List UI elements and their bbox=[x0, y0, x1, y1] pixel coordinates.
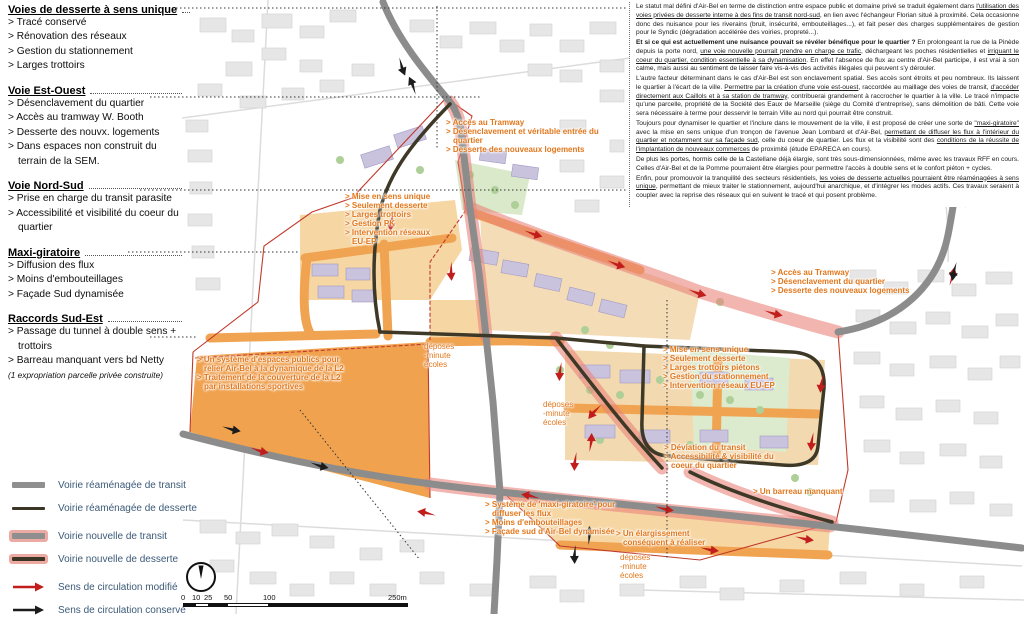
note-section-one-way: Voies de desserte à sens unique > Tracé … bbox=[8, 4, 182, 74]
paragraph: Toujours pour dynamiser le quartier et l… bbox=[636, 120, 1019, 155]
expropriation-note: (1 expropriation parcelle privée constru… bbox=[8, 370, 182, 380]
transit-reworked-swatch bbox=[12, 482, 45, 488]
note-item: > Passage du tunnel à double sens + trot… bbox=[8, 325, 182, 354]
dotted-leader bbox=[89, 188, 182, 189]
paragraph: Le statut mal défini d'Air-Bel en terme … bbox=[636, 3, 1019, 38]
scale-bar-segments bbox=[183, 603, 411, 607]
dotted-leader bbox=[90, 93, 182, 94]
map-callout-one-way-east: > Mise en sens unique> Seulement dessert… bbox=[663, 345, 805, 390]
paragraph: Enfin, pour promouvoir la tranquilité de… bbox=[636, 175, 1019, 201]
note-item: > Gestion du stationnement bbox=[8, 45, 182, 59]
note-section-roundabout: Maxi-giratoire > Diffusion des flux > Mo… bbox=[8, 247, 182, 302]
section-title: Maxi-giratoire bbox=[8, 247, 80, 259]
note-item: > Accessibilité et visibilité du coeur d… bbox=[8, 207, 182, 236]
analysis-text-block: Le statut mal défini d'Air-Bel en terme … bbox=[629, 2, 1020, 207]
legend-label: Voirie nouvelle de transit bbox=[58, 531, 167, 542]
legend-label: Voirie nouvelle de desserte bbox=[58, 554, 178, 565]
legend-label: Voirie réaménagée de transit bbox=[58, 480, 186, 491]
urban-plan-sheet: { "colors": { "transit_gray": "#8f8f8f",… bbox=[0, 0, 1024, 614]
legend-item: Sens de circulation conservé bbox=[12, 603, 202, 617]
legend-label: Voirie réaménagée de desserte bbox=[58, 503, 197, 514]
map-label-school-dropoff: déposes-minuteécoles bbox=[620, 553, 670, 580]
scale-end-label: 250m bbox=[388, 593, 407, 602]
scale-tick: 25 bbox=[204, 593, 212, 602]
scale-tick: 100 bbox=[263, 593, 276, 602]
note-item: > Barreau manquant vers bd Netty bbox=[8, 354, 182, 368]
north-compass-icon bbox=[186, 562, 216, 592]
legend-item: Voirie réaménagée de desserte bbox=[12, 501, 202, 515]
map-label-school-dropoff: déposes-minuteécoles bbox=[424, 342, 474, 369]
note-item: > Désenclavement du quartier bbox=[8, 97, 182, 111]
note-item: > Desserte des nouvx. logements bbox=[8, 126, 182, 140]
map-callout-one-way-west: > Mise en sens unique> Seulement dessert… bbox=[345, 192, 445, 246]
map-callout-public-spaces-l2: > Un système d'espaces publics pour reli… bbox=[197, 355, 353, 391]
legend-item: Voirie nouvelle de transit bbox=[12, 529, 202, 543]
red-arrow-icon bbox=[12, 582, 45, 592]
scale-tick: 0 bbox=[181, 593, 185, 602]
note-item: > Dans espaces non construit du terrain … bbox=[8, 140, 182, 169]
dotted-leader bbox=[85, 255, 182, 256]
paragraph: L'autre facteur déterminant dans le cas … bbox=[636, 75, 1019, 119]
section-title: Voie Est-Ouest bbox=[8, 85, 85, 97]
paragraph: De plus les portes, hormis celle de la C… bbox=[636, 156, 1019, 174]
map-callout-tram-access-north: > Accès au Tramway> Désenclavement et vé… bbox=[446, 118, 624, 154]
scale-tick-labels: 0 10 25 50 100 250m bbox=[183, 593, 411, 602]
section-title: Voie Nord-Sud bbox=[8, 180, 84, 192]
note-item: > Moins d'embouteillages bbox=[8, 273, 182, 287]
paragraph: Et si ce qui est actuellement une nuisan… bbox=[636, 39, 1019, 74]
scale-tick: 10 bbox=[192, 593, 200, 602]
note-item: > Façade Sud dynamisée bbox=[8, 288, 182, 302]
legend-item: Voirie nouvelle de desserte bbox=[12, 552, 202, 566]
dotted-leader bbox=[108, 321, 182, 322]
legend-label: Sens de circulation modifié bbox=[58, 582, 178, 593]
note-item: > Prise en charge du transit parasite bbox=[8, 192, 182, 206]
section-title: Raccords Sud-Est bbox=[8, 313, 103, 325]
note-item: > Larges trottoirs bbox=[8, 59, 182, 73]
map-callout-widening: > Un élargissement conséquent à réaliser bbox=[616, 529, 732, 547]
map-callout-tram-access-east: > Accès au Tramway> Désenclavement du qu… bbox=[771, 268, 931, 295]
service-reworked-swatch bbox=[12, 507, 45, 510]
service-new-swatch bbox=[12, 557, 45, 561]
scale-bar: 0 10 25 50 100 250m bbox=[183, 593, 411, 607]
note-section-southeast-links: Raccords Sud-Est > Passage du tunnel à d… bbox=[8, 313, 182, 379]
note-item: > Rénovation des réseaux bbox=[8, 30, 182, 44]
scale-tick: 50 bbox=[224, 593, 232, 602]
note-item: > Tracé conservé bbox=[8, 16, 182, 30]
map-callout-transit-deviation: > Déviation du transit> Accessibilité & … bbox=[664, 443, 786, 470]
note-section-north-south: Voie Nord-Sud > Prise en charge du trans… bbox=[8, 180, 182, 235]
map-legend: Voirie réaménagée de transit Voirie réam… bbox=[12, 478, 202, 626]
note-item: > Accès au tramway W. Booth bbox=[8, 111, 182, 125]
legend-item: Sens de circulation modifié bbox=[12, 580, 202, 594]
transit-new-swatch bbox=[12, 533, 45, 539]
notes-panel: Voies de desserte à sens unique > Tracé … bbox=[8, 4, 182, 391]
section-title: Voies de desserte à sens unique bbox=[8, 4, 177, 16]
dotted-leader bbox=[182, 12, 190, 13]
map-label-school-dropoff: déposes-minuteécoles bbox=[543, 400, 593, 427]
note-item: > Diffusion des flux bbox=[8, 259, 182, 273]
note-section-east-west: Voie Est-Ouest > Désenclavement du quart… bbox=[8, 85, 182, 169]
legend-item: Voirie réaménagée de transit bbox=[12, 478, 202, 492]
map-callout-missing-link: > Un barreau manquant bbox=[753, 487, 883, 496]
